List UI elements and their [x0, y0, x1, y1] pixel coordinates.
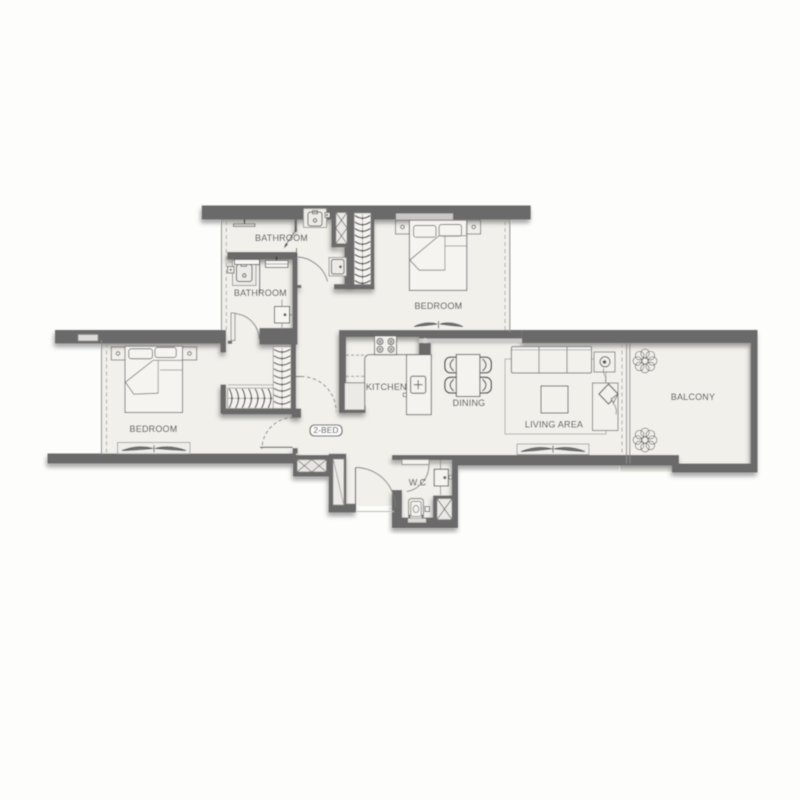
svg-text:BEDROOM: BEDROOM [130, 424, 178, 434]
svg-text:BATHROOM: BATHROOM [255, 233, 308, 243]
svg-text:W.C: W.C [409, 477, 427, 487]
svg-text:LIVING AREA: LIVING AREA [525, 420, 583, 430]
svg-text:BEDROOM: BEDROOM [414, 301, 462, 311]
svg-text:DINING: DINING [453, 398, 486, 408]
svg-text:KITCHEN: KITCHEN [366, 382, 407, 392]
svg-text:BALCONY: BALCONY [671, 392, 715, 402]
svg-text:2-BED: 2-BED [313, 426, 338, 435]
svg-text:BATHROOM: BATHROOM [234, 288, 287, 298]
